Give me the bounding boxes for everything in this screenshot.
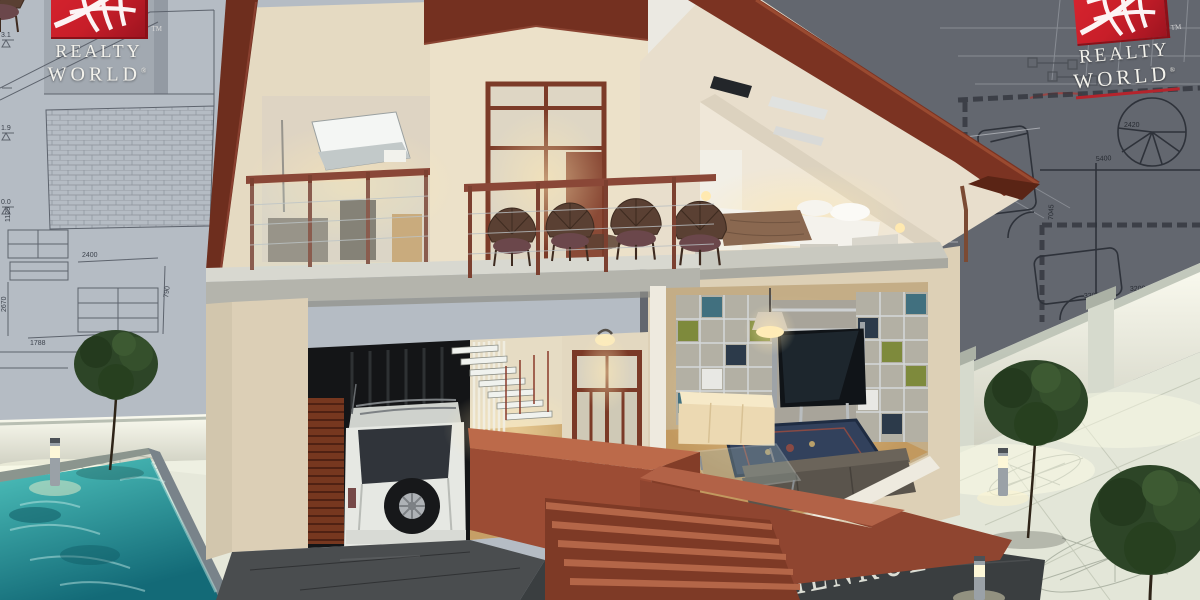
dim-2400: 2400 bbox=[82, 252, 98, 259]
dim-1125: 1125 bbox=[5, 207, 12, 222]
wicker-chair bbox=[488, 208, 536, 266]
logo-wordmark-line2: WORLD® bbox=[34, 61, 164, 86]
elevation-mark-2: 1.9 bbox=[1, 125, 11, 132]
dim-1788: 1788 bbox=[30, 340, 46, 347]
dim-2420: 2420 bbox=[1124, 122, 1140, 129]
blanket bbox=[718, 210, 812, 246]
registered-mark: ® bbox=[141, 67, 150, 75]
dim-7045: 7045 bbox=[1048, 204, 1056, 220]
realty-world-logo-right: TM REALTY WORLD® bbox=[1053, 0, 1193, 100]
trademark-mark: TM bbox=[1170, 23, 1181, 32]
realty-world-logo-left: TM REALTY WORLD® bbox=[34, 0, 164, 86]
house-render-scene: 3.1 1.9 0.0 1125 2670 1788 2400 790 bbox=[0, 0, 1200, 600]
wicker-chair bbox=[674, 201, 727, 265]
render-stage: 3.1 1.9 0.0 1125 2670 1788 2400 790 bbox=[0, 0, 1200, 600]
logo-wordmark-line1: REALTY bbox=[34, 41, 164, 61]
globe-icon bbox=[51, 0, 148, 39]
dim-2670: 2670 bbox=[1, 296, 8, 312]
spare-tire bbox=[384, 478, 440, 534]
globe-icon bbox=[1072, 0, 1170, 46]
trademark-mark: TM bbox=[152, 25, 163, 33]
registered-mark: ® bbox=[1169, 65, 1179, 74]
ground-wall-left bbox=[206, 302, 232, 560]
wicker-chair bbox=[546, 203, 594, 261]
sofa-cream bbox=[674, 386, 780, 454]
elevation-mark-1: 3.1 bbox=[1, 32, 11, 39]
elevation-mark-3: 0.0 bbox=[1, 199, 11, 206]
dim-5400: 5400 bbox=[1096, 155, 1112, 163]
